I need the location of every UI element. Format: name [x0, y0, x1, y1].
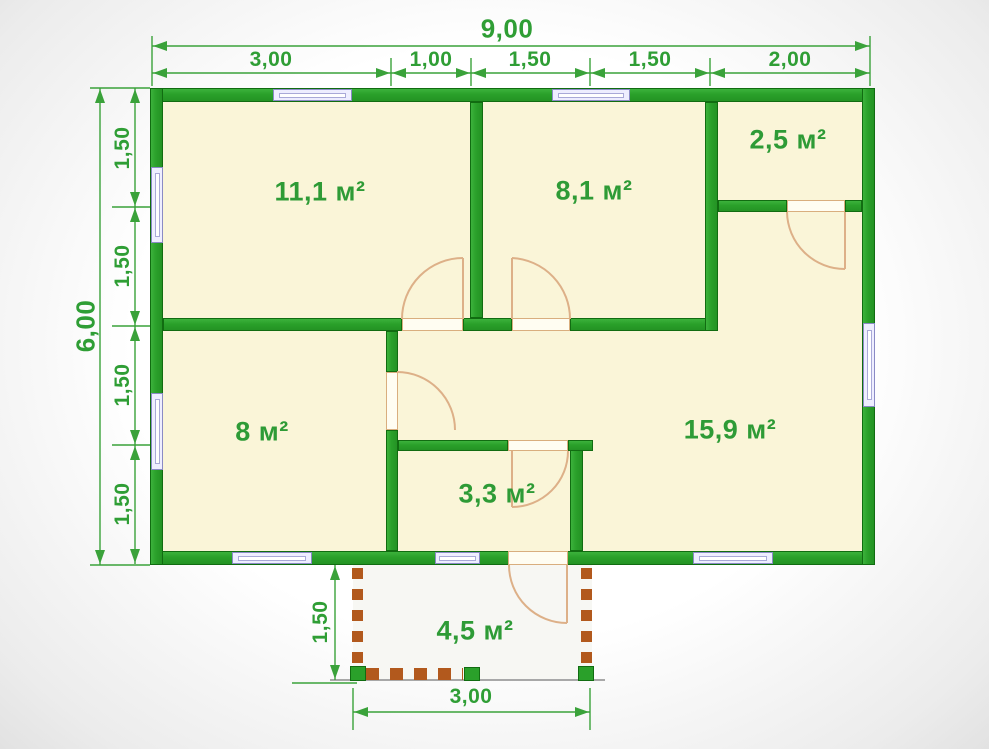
room-label-11-1: 11,1 м²	[274, 177, 365, 208]
door-opening-room-11	[402, 318, 463, 331]
window-bottom-2	[435, 552, 480, 564]
window-right-1	[863, 323, 875, 407]
window-top-2	[552, 89, 630, 101]
dim-porch-width: 3,00	[450, 685, 493, 709]
wall-3-3-right	[570, 450, 583, 551]
dim-total-width: 9,00	[481, 14, 534, 45]
porch-pier-center	[464, 667, 480, 681]
room-label-15-9: 15,9 м²	[684, 415, 777, 446]
room-label-3-3: 3,3 м²	[459, 479, 536, 510]
porch-edge-bottom	[366, 668, 463, 680]
door-opening-room-8-1	[512, 318, 570, 331]
room-label-8: 8 м²	[235, 417, 288, 448]
window-bottom-3	[693, 552, 773, 564]
window-top-1	[273, 89, 352, 101]
dim-top-segment-4: 1,50	[629, 48, 672, 72]
floor-plan: 11,1 м² 8,1 м² 2,5 м² 8 м² 15,9 м² 3,3 м…	[0, 0, 989, 749]
dim-left-segment-1: 1,50	[111, 127, 135, 170]
wall-hall-top-mid	[463, 318, 512, 331]
wall-room8-right-lower	[386, 430, 398, 551]
dim-total-height: 6,00	[71, 300, 102, 353]
dim-top-segment-5: 2,00	[769, 48, 812, 72]
door-opening-room-8	[386, 372, 398, 430]
dim-left-segment-4: 1,50	[111, 483, 135, 526]
window-bottom-1	[232, 552, 312, 564]
dim-porch-depth: 1,50	[309, 601, 333, 644]
wall-exterior-left	[150, 88, 163, 565]
wall-room8-right-upper	[386, 331, 398, 372]
wall-between-8-1-and-2-5	[705, 102, 718, 331]
dim-top-segment-1: 3,00	[250, 48, 293, 72]
wall-below-2-5-right	[845, 200, 862, 212]
dim-top-segment-3: 1,50	[509, 48, 552, 72]
wall-between-11-and-8-1	[470, 102, 483, 318]
dim-top-segment-2: 1,00	[410, 48, 453, 72]
wall-hall-top-right	[570, 318, 718, 331]
door-opening-room-3-3	[508, 440, 568, 451]
wall-3-3-top-left	[398, 440, 508, 451]
porch-edge-left	[352, 568, 363, 667]
wall-hall-top-left	[163, 318, 402, 331]
window-left-1	[151, 167, 163, 243]
room-label-4-5: 4,5 м²	[437, 616, 514, 647]
door-opening-room-2-5	[787, 200, 845, 212]
window-left-2	[151, 393, 163, 470]
dim-left-segment-3: 1,50	[111, 364, 135, 407]
wall-exterior-top	[150, 88, 875, 102]
room-label-8-1: 8,1 м²	[556, 176, 633, 207]
room-label-2-5: 2,5 м²	[750, 125, 827, 156]
porch-pier-right	[578, 666, 594, 681]
door-opening-porch	[508, 551, 568, 565]
dim-left-segment-2: 1,50	[111, 245, 135, 288]
porch-pier-left	[350, 666, 366, 681]
porch-edge-right	[581, 568, 592, 667]
wall-below-2-5-left	[718, 200, 787, 212]
